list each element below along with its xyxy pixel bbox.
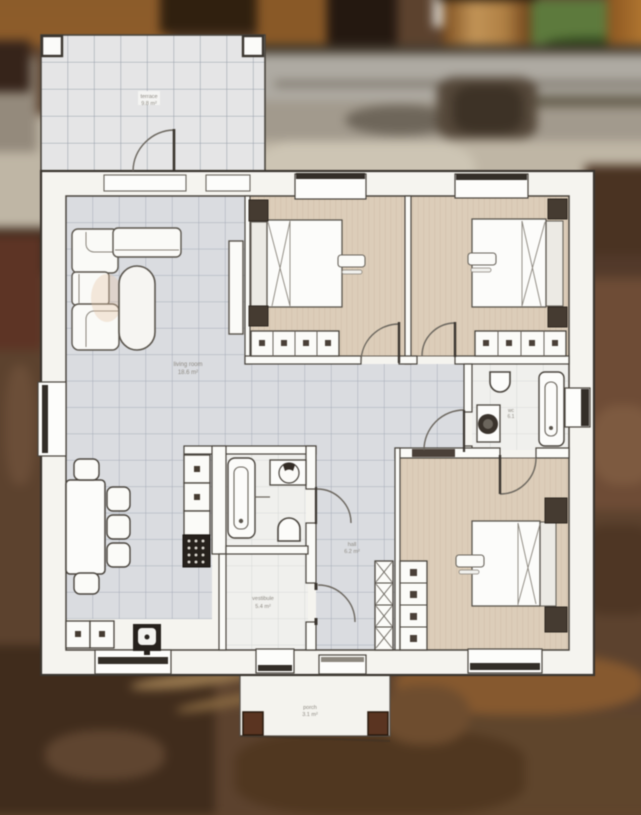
- svg-text:vestibule: vestibule: [252, 596, 274, 602]
- svg-text:living room: living room: [173, 362, 202, 368]
- svg-text:terrace: terrace: [140, 94, 157, 100]
- svg-text:hall: hall: [348, 542, 357, 548]
- svg-text:porch: porch: [303, 705, 317, 711]
- svg-text:9.8 m²: 9.8 m²: [141, 101, 157, 107]
- svg-text:3.1 m²: 3.1 m²: [302, 712, 318, 718]
- svg-text:5.4 m²: 5.4 m²: [255, 604, 271, 610]
- svg-text:6.1: 6.1: [508, 414, 515, 420]
- svg-text:6.2 m²: 6.2 m²: [344, 549, 360, 555]
- svg-text:18.6 m²: 18.6 m²: [178, 370, 198, 376]
